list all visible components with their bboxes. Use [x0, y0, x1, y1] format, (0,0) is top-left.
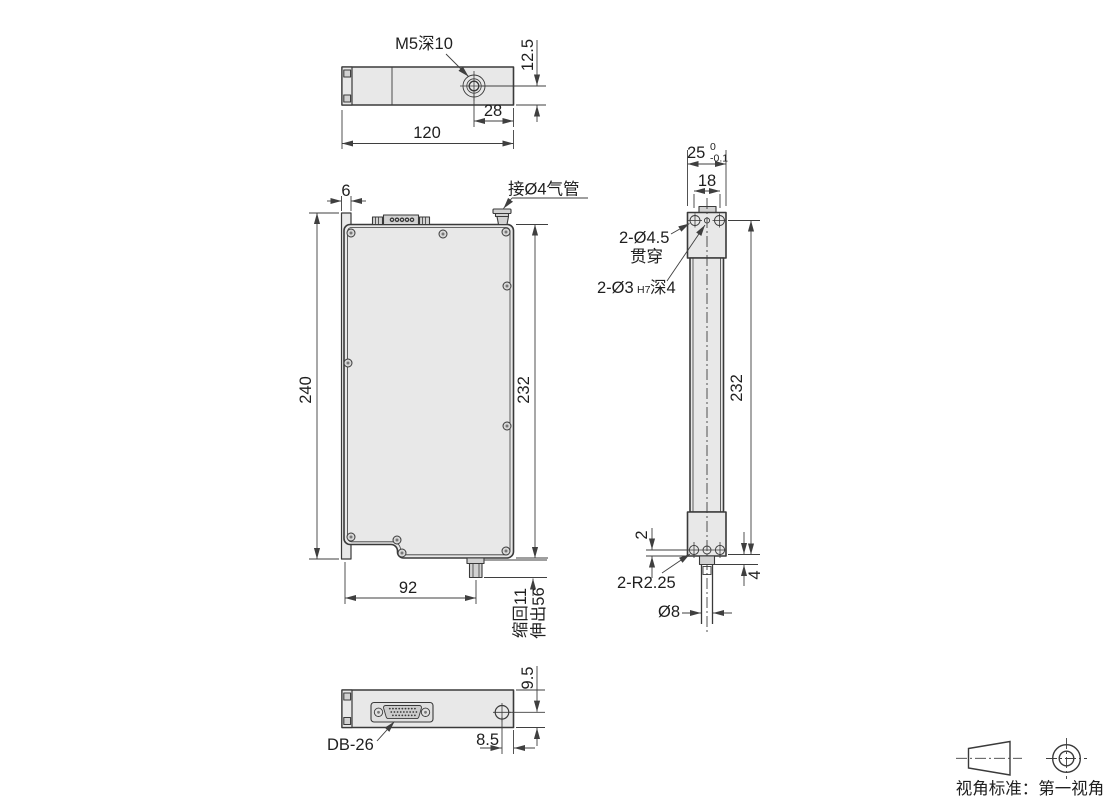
db26-connector — [371, 703, 433, 723]
stroke-retract-label: 缩回11 — [511, 588, 530, 638]
first-angle-cone-icon — [956, 742, 1022, 776]
through-holes-note: 贯穿 — [630, 247, 663, 266]
dim-25-label: 25 — [687, 144, 705, 162]
air-fitting — [493, 209, 511, 225]
dowel-label-prefix: 2-Ø3 — [597, 279, 634, 297]
drawing-page: M5深10 12.5 28 120 — [0, 0, 1110, 801]
dim-6: 6 — [327, 182, 366, 211]
dowel-label-fit: H7 — [637, 284, 651, 296]
bottom-view: DB-26 9.5 8.5 — [327, 666, 545, 754]
top-view: M5深10 12.5 28 120 — [342, 34, 546, 149]
front-view: 接Ø4气管 6 240 232 — [297, 180, 588, 639]
air-fitting-label: 接Ø4气管 — [508, 180, 580, 199]
dim-28-label: 28 — [484, 102, 502, 120]
radius-label: 2-R2.25 — [617, 574, 676, 592]
dim-2-label: 2 — [633, 530, 651, 539]
dim-25-tol-lower: -0.1 — [710, 153, 728, 165]
air-fitting-edge — [699, 207, 716, 213]
engineering-drawing: M5深10 12.5 28 120 — [0, 0, 1110, 801]
piston-rod-side — [700, 556, 715, 624]
piston-rod-front — [467, 558, 484, 578]
projection-standard-label: 视角标准：第一视角 — [956, 779, 1105, 798]
dim-25-tol-upper: 0 — [710, 141, 716, 153]
dim-232-front-label: 232 — [515, 376, 533, 404]
dim-232-side: 232 — [728, 221, 760, 555]
dim-240: 240 — [297, 213, 339, 559]
through-holes-callout: 2-Ø4.5 贯穿 — [619, 224, 690, 267]
dim-232-side-label: 232 — [728, 374, 746, 402]
thread-label: M5深10 — [395, 34, 453, 53]
dim-18-label: 18 — [698, 172, 716, 190]
dim-120-label: 120 — [413, 124, 441, 142]
air-fitting-callout: 接Ø4气管 — [504, 180, 589, 209]
dim-8-5-label: 8.5 — [476, 731, 499, 749]
projection-symbol: 视角标准：第一视角 — [956, 738, 1105, 798]
through-holes-label: 2-Ø4.5 — [619, 229, 669, 247]
dim-2: 2 — [633, 528, 689, 578]
db26-label: DB-26 — [327, 736, 374, 754]
dim-92: 92 — [345, 562, 476, 604]
dowel-label-depth: 深4 — [650, 278, 676, 297]
dim-232-front: 232 — [515, 225, 548, 559]
dsub-connector-side — [373, 215, 430, 225]
first-angle-circles-icon — [1046, 738, 1087, 779]
front-cover-plate — [344, 225, 514, 559]
dim-4-label: 4 — [746, 570, 764, 579]
rod-diameter-label: Ø8 — [658, 603, 680, 621]
dim-92-label: 92 — [399, 579, 417, 597]
stroke-dim: 缩回11 伸出56 — [484, 560, 548, 639]
dim-240-label: 240 — [297, 376, 315, 404]
rod-diameter-dim: Ø8 — [658, 603, 732, 621]
dim-6-label: 6 — [341, 182, 350, 200]
stroke-extend-label: 伸出56 — [529, 587, 548, 638]
radius-callout: 2-R2.25 — [617, 554, 690, 592]
dim-9-5-label: 9.5 — [519, 667, 537, 690]
side-view: 25 0 -0.1 18 2-Ø4.5 贯穿 2-Ø3 H7 深4 232 — [597, 141, 764, 632]
dim-12-5-label: 12.5 — [519, 39, 537, 71]
